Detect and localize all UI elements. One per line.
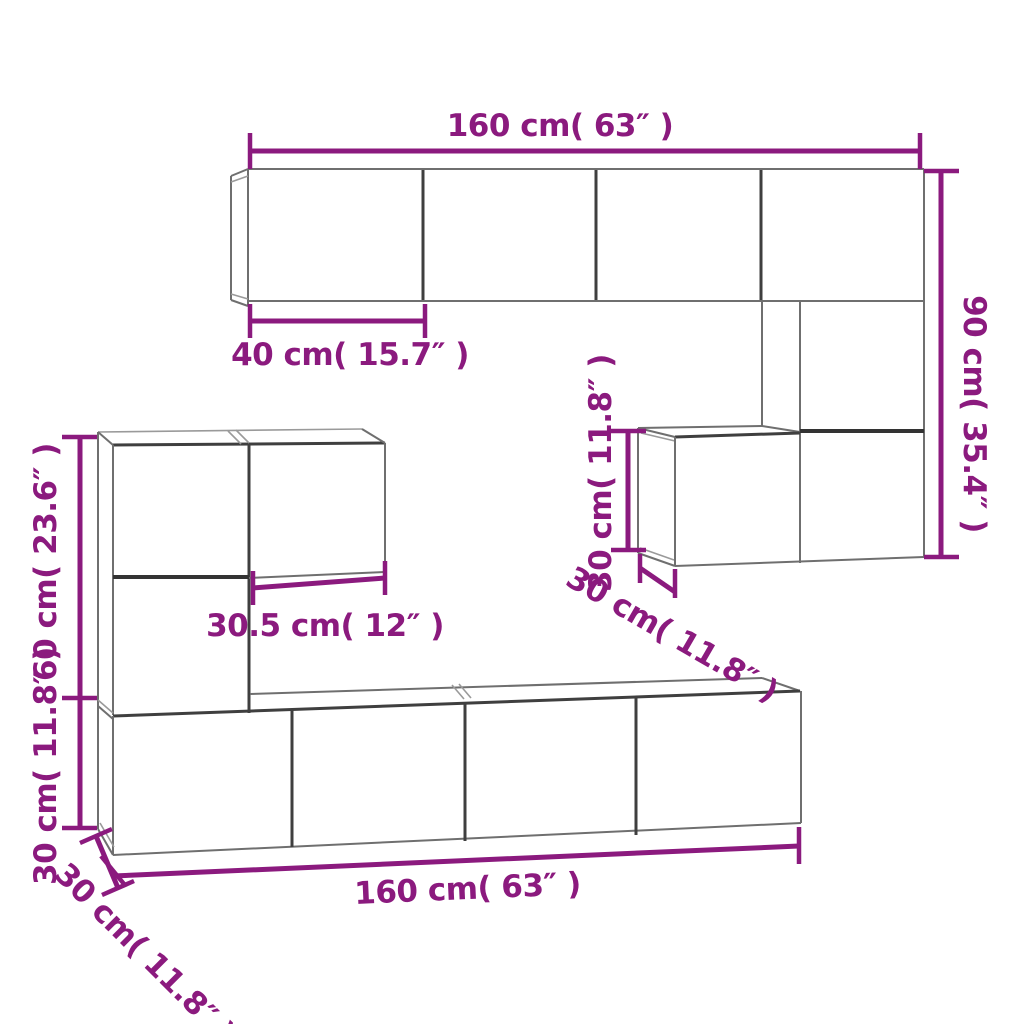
dim-label-bottom-width: 160 cm( 63″ ) [354,866,582,912]
dim-label-left-unit-height: 60 cm( 23.6″ ) [28,443,64,681]
dim-label-top-door-width: 40 cm( 15.7″ ) [231,337,469,373]
middle-wall-cabinet [638,426,800,566]
dim-label-top-width: 160 cm( 63″ ) [447,108,674,144]
bottom-tv-bench [98,678,801,855]
dim-middle-cabinet-height: 30 cm( 11.8″ ) [583,354,646,592]
dim-right-height: 90 cm( 35.4″ ) [924,171,992,557]
dim-middle-cabinet-depth: 30 cm( 11.8″ ) [560,554,784,710]
dim-label-right-height: 90 cm( 35.4″ ) [956,295,992,533]
dim-label-middle-cabinet-height: 30 cm( 11.8″ ) [583,354,619,592]
cabinet-line-drawing: 160 cm( 63″ ) 40 cm( 15.7″ ) 90 cm( 35.4… [0,0,1024,1024]
dimension-diagram: 160 cm( 63″ ) 40 cm( 15.7″ ) 90 cm( 35.4… [0,0,1024,1024]
dim-label-left-lower-height: 30 cm( 11.8″ ) [28,647,64,885]
dim-top-door-width: 40 cm( 15.7″ ) [231,304,469,373]
dim-label-bottom-depth: 30 cm( 11.8″ ) [47,856,241,1024]
dim-label-middle-cabinet-depth: 30 cm( 11.8″ ) [560,560,784,710]
dimension-annotations: 160 cm( 63″ ) 40 cm( 15.7″ ) 90 cm( 35.4… [28,108,992,1024]
left-wall-unit [98,429,385,715]
dim-bottom-depth: 30 cm( 11.8″ ) [47,829,241,1024]
dim-top-width: 160 cm( 63″ ) [250,108,920,169]
dim-left-cabinet-width: 30.5 cm( 12″ ) [206,561,444,644]
dim-label-left-cabinet-width: 30.5 cm( 12″ ) [206,608,444,644]
dim-left-lower-height: 30 cm( 11.8″ ) [28,647,97,885]
